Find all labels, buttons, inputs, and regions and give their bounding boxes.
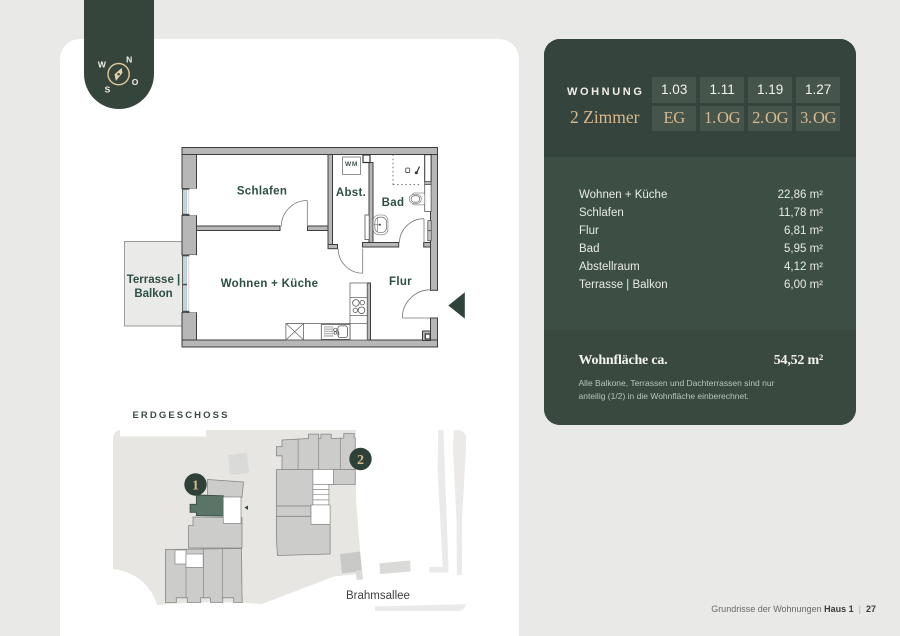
svg-text:Brahmsallee: Brahmsallee bbox=[346, 590, 410, 602]
svg-text:Abst.: Abst. bbox=[336, 187, 366, 199]
svg-text:2: 2 bbox=[357, 453, 364, 468]
svg-text:1: 1 bbox=[192, 479, 199, 494]
svg-text:N: N bbox=[126, 55, 132, 65]
svg-text:S: S bbox=[105, 84, 111, 94]
svg-text:Schlafen: Schlafen bbox=[237, 186, 287, 198]
svg-text:Bad: Bad bbox=[382, 197, 405, 209]
svg-text:O: O bbox=[132, 77, 139, 87]
svg-text:W: W bbox=[98, 59, 107, 69]
svg-text:Terrasse |: Terrasse | bbox=[127, 274, 181, 286]
svg-text:WM: WM bbox=[345, 161, 358, 168]
svg-text:Flur: Flur bbox=[389, 276, 412, 288]
svg-text:Wohnen + Küche: Wohnen + Küche bbox=[221, 278, 319, 290]
svg-text:Balkon: Balkon bbox=[134, 288, 172, 300]
